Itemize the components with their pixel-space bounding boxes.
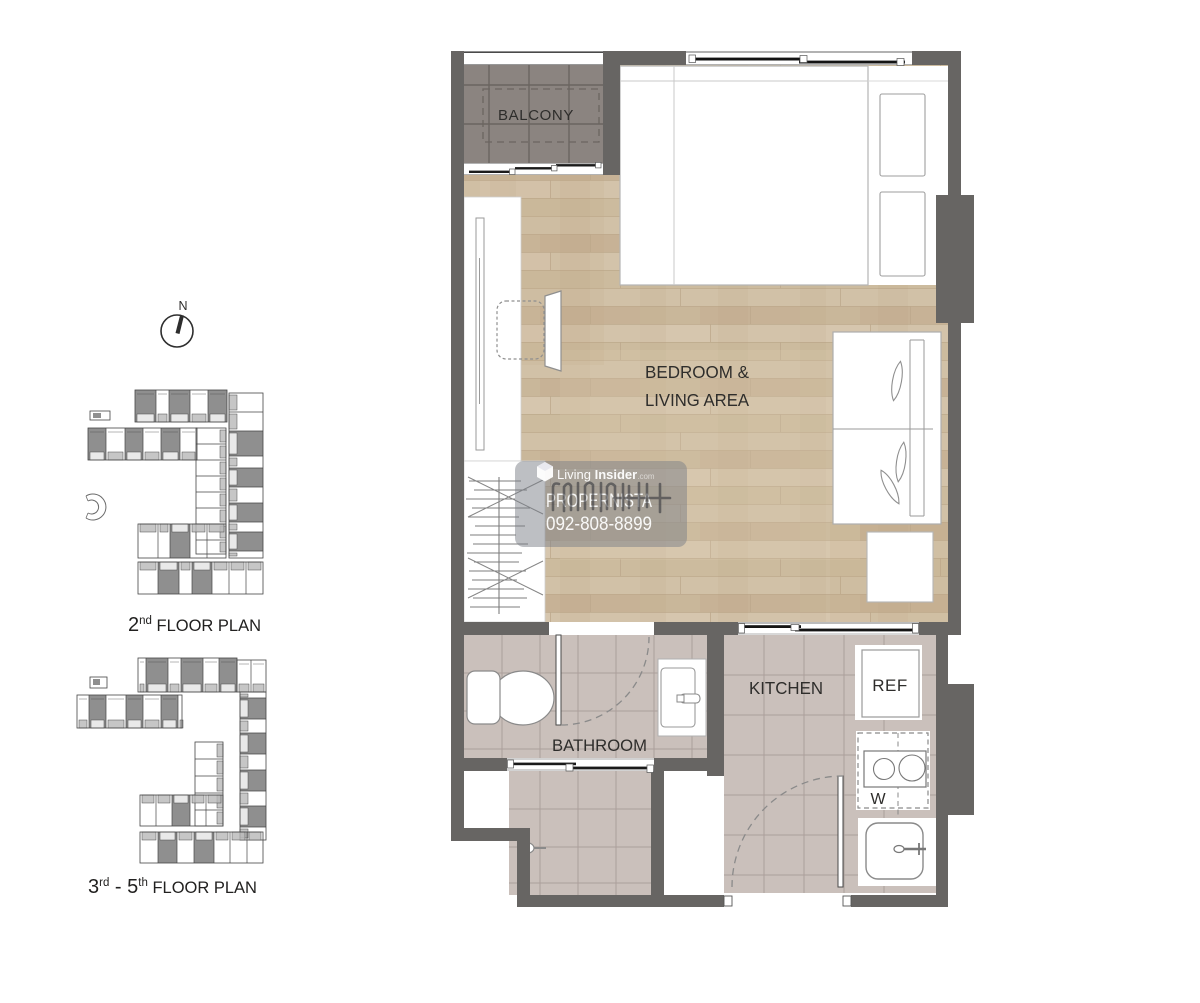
svg-text:KITCHEN: KITCHEN xyxy=(749,678,823,698)
svg-text:REF: REF xyxy=(872,676,908,695)
svg-text:PROPERNISTA: PROPERNISTA xyxy=(546,491,652,512)
svg-text:N: N xyxy=(178,299,187,313)
svg-text:3rd - 5th FLOOR PLAN: 3rd - 5th FLOOR PLAN xyxy=(88,876,257,898)
svg-text:BEDROOM &: BEDROOM & xyxy=(645,362,749,382)
svg-text:BALCONY: BALCONY xyxy=(498,107,574,124)
svg-text:LIVING AREA: LIVING AREA xyxy=(645,390,749,410)
svg-text:092-808-8899: 092-808-8899 xyxy=(546,513,652,535)
svg-text:W: W xyxy=(870,791,886,808)
svg-text:BATHROOM: BATHROOM xyxy=(552,737,647,755)
